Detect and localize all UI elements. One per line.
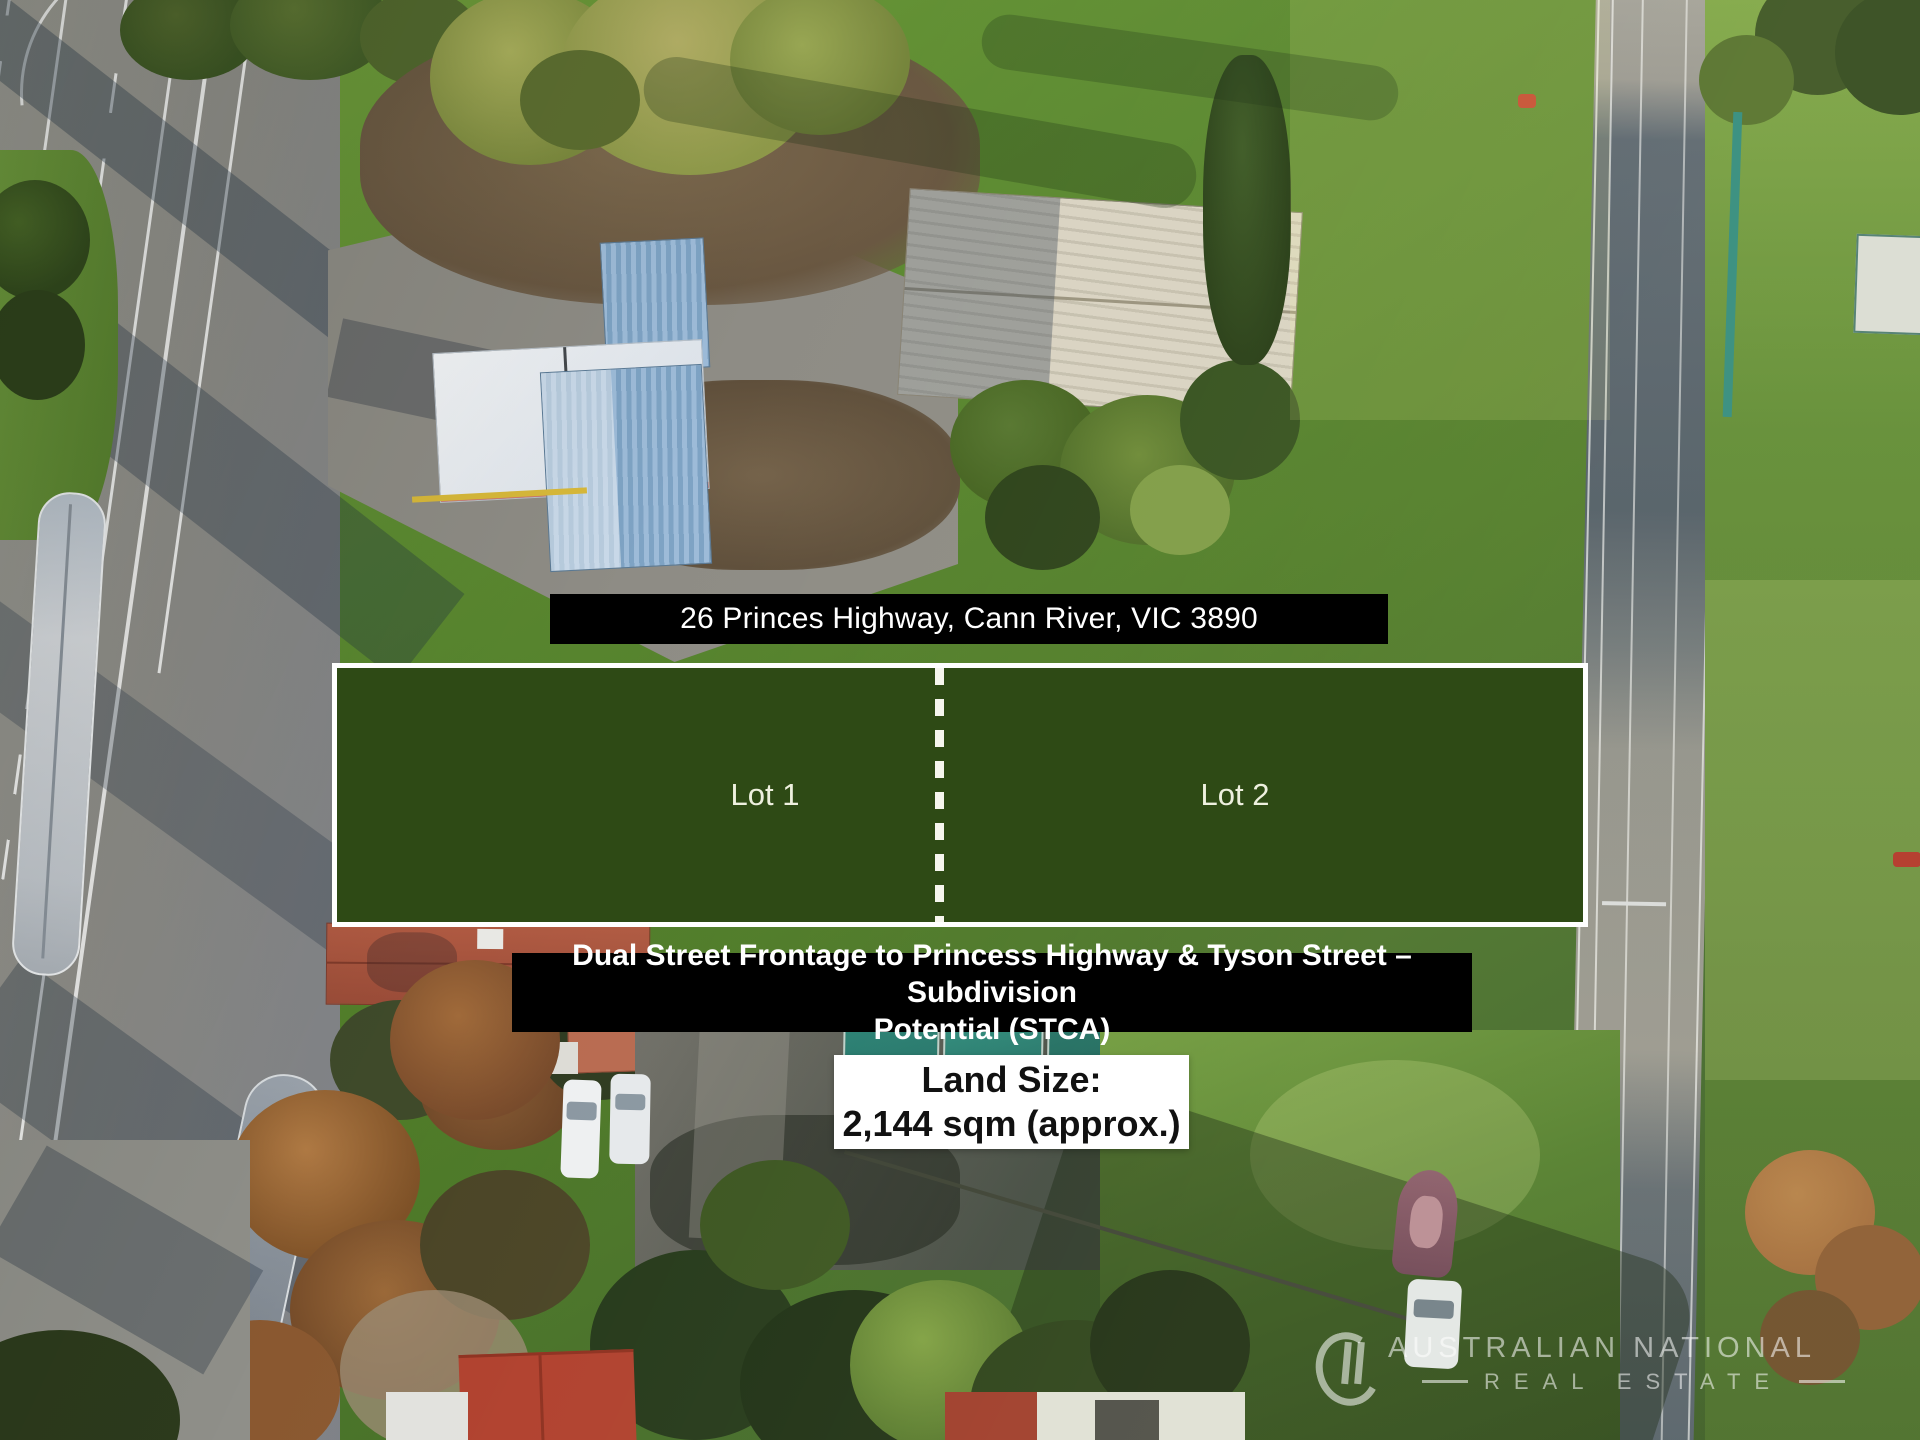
photo-detail: [985, 465, 1100, 570]
agency-watermark: AUSTRALIAN NATIONAL REAL ESTATE: [1316, 1320, 1876, 1406]
agency-wordmark: AUSTRALIAN NATIONAL REAL ESTATE: [1388, 1332, 1845, 1395]
photo-detail: [1699, 35, 1794, 125]
photo-detail: [0, 180, 90, 300]
photo-detail: [615, 1094, 645, 1111]
right-lawns: [1705, 0, 1920, 1440]
address-text: 26 Princes Highway, Cann River, VIC 3890: [680, 602, 1258, 636]
photo-detail: [1705, 580, 1920, 1080]
photo-detail: [41, 504, 72, 958]
lot-1-label: Lot 1: [731, 777, 800, 813]
lot-boundary-overlay: Lot 1 Lot 2: [332, 663, 1588, 927]
land-size-box: Land Size: 2,144 sqm (approx.): [834, 1055, 1189, 1149]
agency-name: AUSTRALIAN NATIONAL: [1388, 1332, 1845, 1365]
land-size-title: Land Size:: [921, 1058, 1101, 1102]
dash-decoration: [1422, 1380, 1468, 1383]
agency-logo-icon: [1316, 1330, 1374, 1396]
frontage-line-2: Potential (STCA): [874, 1011, 1111, 1048]
real-estate-listing-image: 26 Princes Highway, Cann River, VIC 3890…: [0, 0, 1920, 1440]
photo-detail: [477, 929, 503, 949]
photo-detail: [538, 1355, 544, 1440]
lot-divider-dashed-line: [935, 668, 944, 922]
photo-detail: [1617, 0, 1644, 1440]
building-bottom-centre: [945, 1392, 1245, 1440]
white-car-2: [609, 1074, 651, 1165]
photo-detail: [700, 1160, 850, 1290]
lot-2-label: Lot 2: [1201, 777, 1270, 813]
photo-detail: [1602, 901, 1666, 906]
frontage-line-1: Dual Street Frontage to Princess Highway…: [512, 937, 1472, 1011]
photo-detail: [945, 1392, 1037, 1440]
photo-detail: [1723, 112, 1743, 417]
photo-detail: [541, 370, 621, 571]
dash-decoration: [1799, 1380, 1845, 1383]
white-roof-bottom-left: [386, 1392, 468, 1440]
photo-detail: [0, 290, 85, 400]
photo-detail: [1095, 1400, 1159, 1440]
photo-detail: [520, 50, 640, 150]
petrol-station-building: [540, 364, 712, 572]
agency-division: REAL ESTATE: [1484, 1369, 1783, 1395]
photo-detail: [1853, 234, 1920, 335]
frontage-banner: Dual Street Frontage to Princess Highway…: [512, 953, 1472, 1032]
garden-trees-mid: [930, 350, 1270, 600]
photo-detail: [1661, 0, 1688, 1440]
land-size-value: 2,144 sqm (approx.): [842, 1102, 1180, 1146]
photo-detail: [1413, 1299, 1454, 1319]
left-verge-grass: [0, 150, 118, 540]
photo-detail: [1893, 852, 1920, 867]
photo-detail: [1180, 360, 1300, 480]
photo-detail: [1130, 465, 1230, 555]
red-house-bottom: [458, 1349, 636, 1440]
photo-detail: [1835, 0, 1920, 115]
agency-division-row: REAL ESTATE: [1422, 1369, 1845, 1395]
address-banner: 26 Princes Highway, Cann River, VIC 3890: [550, 594, 1388, 644]
photo-detail: [1407, 1194, 1444, 1249]
